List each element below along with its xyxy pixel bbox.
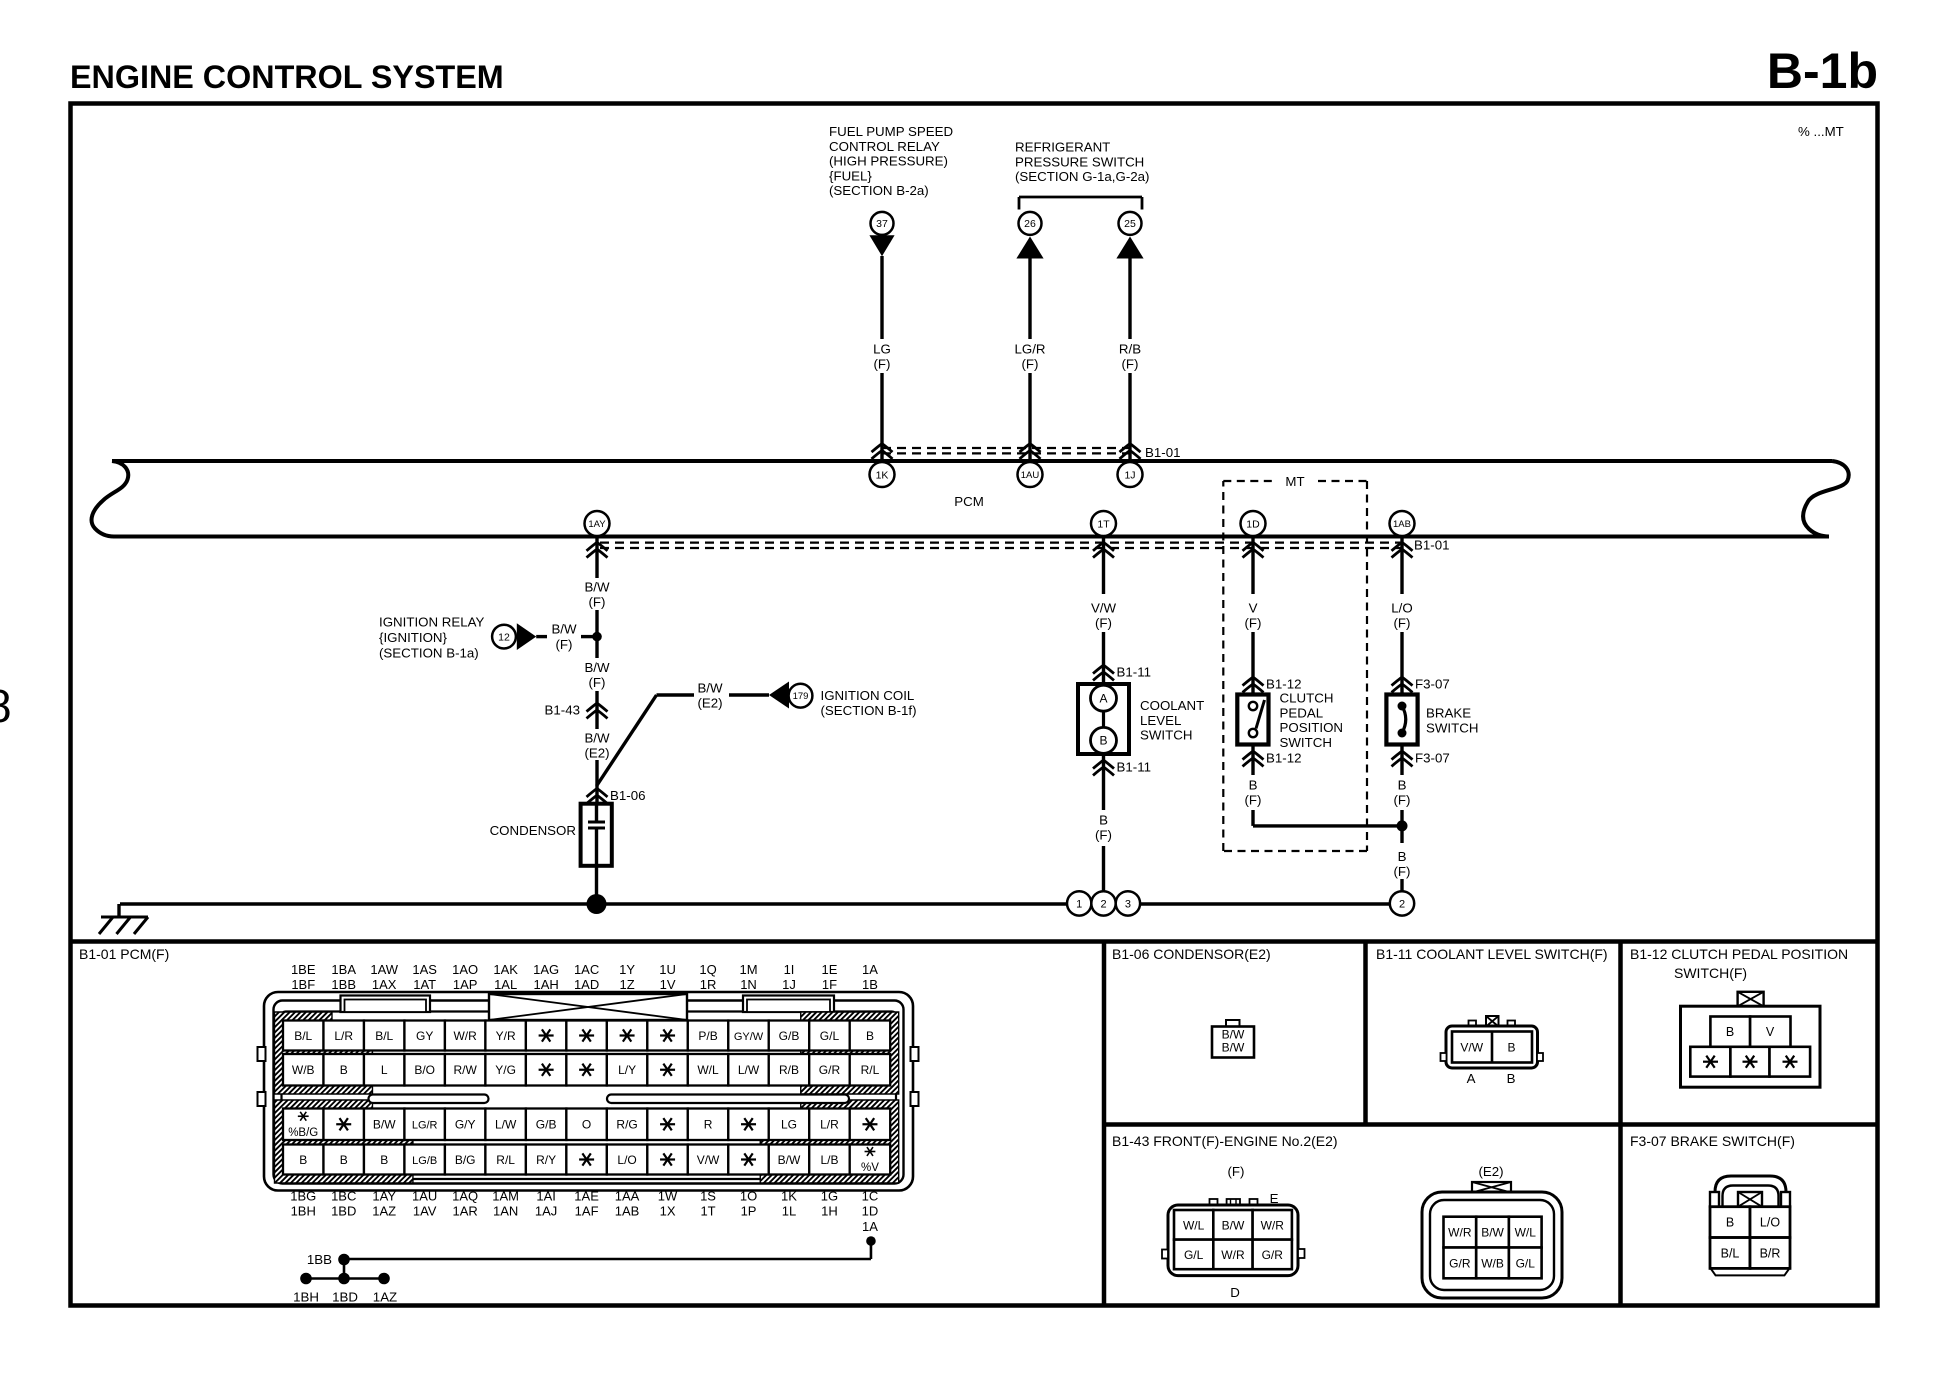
svg-text:B/W: B/W (778, 1153, 801, 1167)
svg-text:1O: 1O (740, 1189, 757, 1204)
svg-text:LG/R: LG/R (1014, 342, 1045, 357)
svg-text:1AZ: 1AZ (372, 1204, 396, 1219)
svg-text:CLUTCH: CLUTCH (1280, 691, 1334, 706)
svg-text:PRESSURE SWITCH: PRESSURE SWITCH (1015, 154, 1144, 169)
svg-text:1K: 1K (781, 1189, 797, 1204)
svg-text:B1-43: B1-43 (545, 703, 580, 718)
svg-text:1BB: 1BB (307, 1252, 332, 1267)
svg-text:F3-07: F3-07 (1415, 677, 1450, 692)
svg-text:BRAKE: BRAKE (1426, 706, 1471, 721)
svg-text:(SECTION B-1a): (SECTION B-1a) (379, 645, 479, 660)
svg-text:B: B (1507, 1071, 1516, 1086)
svg-text:R/B: R/B (1119, 342, 1141, 357)
svg-text:LEVEL: LEVEL (1140, 713, 1181, 728)
svg-text:25: 25 (1124, 218, 1136, 230)
svg-text:1BA: 1BA (331, 962, 356, 977)
svg-text:MT: MT (1285, 474, 1304, 489)
svg-text:B/G: B/G (455, 1153, 476, 1167)
svg-text:B/L: B/L (1721, 1247, 1740, 1261)
svg-text:1W: 1W (658, 1189, 678, 1204)
svg-text:G/B: G/B (779, 1029, 800, 1043)
svg-text:REFRIGERANT: REFRIGERANT (1015, 140, 1110, 155)
svg-text:L/O: L/O (1760, 1216, 1780, 1230)
svg-text:1AA: 1AA (615, 1189, 640, 1204)
svg-text:1AL: 1AL (494, 977, 517, 992)
svg-text:W/B: W/B (292, 1063, 315, 1077)
svg-text:R: R (704, 1118, 713, 1132)
svg-text:L/R: L/R (820, 1118, 839, 1132)
svg-text:A: A (1099, 692, 1107, 706)
svg-text:1AT: 1AT (413, 977, 436, 992)
svg-text:B1-01 PCM(F): B1-01 PCM(F) (79, 946, 169, 962)
svg-text:(SECTION B-2a): (SECTION B-2a) (829, 183, 929, 198)
svg-text:1P: 1P (741, 1204, 757, 1219)
svg-text:LG/R: LG/R (412, 1120, 438, 1132)
svg-text:1BE: 1BE (291, 962, 316, 977)
svg-text:1BH: 1BH (293, 1290, 319, 1305)
svg-text:(F): (F) (874, 356, 891, 371)
svg-text:1AK: 1AK (493, 962, 518, 977)
svg-text:L/R: L/R (334, 1029, 353, 1043)
svg-text:(F): (F) (1394, 615, 1411, 630)
svg-text:{IGNITION}: {IGNITION} (379, 630, 448, 645)
svg-text:R/L: R/L (861, 1063, 880, 1077)
svg-text:(E2): (E2) (697, 695, 722, 710)
svg-text:1AF: 1AF (575, 1204, 599, 1219)
svg-text:1U: 1U (659, 962, 676, 977)
svg-text:SWITCH(F): SWITCH(F) (1674, 965, 1747, 981)
svg-text:IGNITION COIL: IGNITION COIL (821, 688, 915, 703)
svg-text:B1-01: B1-01 (1414, 538, 1449, 553)
svg-text:V: V (1249, 601, 1258, 616)
svg-text:179: 179 (793, 691, 809, 702)
svg-text:1AE: 1AE (574, 1189, 599, 1204)
svg-text:1BH: 1BH (291, 1204, 316, 1219)
svg-text:26: 26 (1024, 218, 1036, 230)
svg-text:1AQ: 1AQ (452, 1189, 478, 1204)
svg-text:(F): (F) (1095, 827, 1112, 842)
svg-text:POSITION: POSITION (1280, 720, 1344, 735)
svg-text:1AJ: 1AJ (535, 1204, 557, 1219)
svg-text:B1-06: B1-06 (610, 788, 645, 803)
svg-text:GY: GY (416, 1029, 433, 1043)
svg-text:F3-07 BRAKE SWITCH(F): F3-07 BRAKE SWITCH(F) (1630, 1133, 1795, 1149)
svg-text:1AY: 1AY (588, 519, 606, 530)
svg-text:1BC: 1BC (331, 1189, 356, 1204)
svg-text:G/B: G/B (536, 1118, 557, 1132)
svg-text:1AM: 1AM (492, 1189, 519, 1204)
svg-text:V: V (1766, 1025, 1775, 1039)
svg-text:B1-12: B1-12 (1266, 677, 1301, 692)
svg-text:B1-11: B1-11 (1117, 760, 1152, 775)
svg-text:(F): (F) (556, 637, 573, 652)
svg-text:1AR: 1AR (453, 1204, 478, 1219)
svg-text:L/Y: L/Y (618, 1063, 636, 1077)
svg-text:B: B (380, 1153, 388, 1167)
svg-text:B/W: B/W (1222, 1028, 1245, 1042)
svg-text:LG/B: LG/B (412, 1155, 437, 1167)
svg-text:B: B (1398, 778, 1407, 793)
svg-text:%V: %V (861, 1162, 879, 1174)
svg-text:B1-43 FRONT(F)-ENGINE No.2(E2: B1-43 FRONT(F)-ENGINE No.2(E2) (1112, 1133, 1338, 1149)
svg-text:PCM: PCM (954, 494, 984, 509)
svg-text:G/Y: G/Y (455, 1118, 476, 1132)
svg-text:GY/W: GY/W (734, 1031, 764, 1043)
svg-text:L/W: L/W (738, 1063, 760, 1077)
svg-text:B/W: B/W (584, 580, 610, 595)
svg-text:B/O: B/O (414, 1063, 435, 1077)
svg-text:G/L: G/L (1516, 1257, 1536, 1271)
svg-text:V/W: V/W (697, 1153, 720, 1167)
svg-text:2: 2 (1100, 898, 1106, 910)
svg-text:W/L: W/L (1515, 1226, 1537, 1240)
svg-text:1B: 1B (862, 977, 878, 992)
svg-text:1F: 1F (822, 977, 837, 992)
svg-text:B/W: B/W (1481, 1226, 1504, 1240)
svg-text:1M: 1M (739, 962, 757, 977)
svg-text:B: B (1726, 1025, 1734, 1039)
svg-text:1AO: 1AO (452, 962, 478, 977)
svg-text:V/W: V/W (1091, 601, 1117, 616)
svg-text:1AN: 1AN (493, 1204, 518, 1219)
svg-text:B1-06 CONDENSOR(E2): B1-06 CONDENSOR(E2) (1112, 946, 1271, 962)
svg-text:1AX: 1AX (372, 977, 397, 992)
svg-text:B: B (1099, 813, 1108, 828)
svg-text:R/Y: R/Y (536, 1153, 556, 1167)
svg-text:(F): (F) (1228, 1164, 1245, 1179)
svg-text:1H: 1H (821, 1204, 838, 1219)
svg-text:G/R: G/R (819, 1063, 841, 1077)
svg-text:1S: 1S (700, 1189, 716, 1204)
svg-text:B1-12 CLUTCH PEDAL POSITION: B1-12 CLUTCH PEDAL POSITION (1630, 946, 1848, 962)
svg-text:G/L: G/L (1184, 1248, 1204, 1262)
svg-text:1N: 1N (740, 977, 757, 992)
svg-text:CONTROL RELAY: CONTROL RELAY (829, 139, 940, 154)
svg-text:W/R: W/R (1261, 1219, 1285, 1233)
svg-text:B: B (1099, 734, 1107, 748)
svg-text:SWITCH: SWITCH (1280, 735, 1332, 750)
svg-text:(F): (F) (1245, 792, 1262, 807)
svg-text:1BD: 1BD (332, 1290, 358, 1305)
svg-text:LG: LG (873, 342, 891, 357)
svg-text:1AS: 1AS (412, 962, 437, 977)
svg-text:PEDAL: PEDAL (1280, 705, 1324, 720)
svg-text:L/B: L/B (820, 1153, 838, 1167)
svg-text:L/O: L/O (1391, 601, 1412, 616)
svg-text:1I: 1I (784, 962, 795, 977)
svg-text:W/L: W/L (1183, 1219, 1205, 1233)
svg-text:1BF: 1BF (291, 977, 315, 992)
svg-text:1AH: 1AH (533, 977, 558, 992)
svg-text:G/L: G/L (820, 1029, 840, 1043)
svg-text:1AU: 1AU (1021, 470, 1040, 481)
svg-text:1AV: 1AV (413, 1204, 437, 1219)
svg-text:8: 8 (0, 680, 12, 732)
svg-text:B/W: B/W (1222, 1041, 1245, 1055)
svg-text:1Q: 1Q (699, 962, 716, 977)
svg-text:2: 2 (1399, 898, 1405, 910)
svg-text:W/R: W/R (1448, 1226, 1472, 1240)
svg-text:B1-01: B1-01 (1145, 445, 1180, 460)
svg-text:1C: 1C (862, 1189, 879, 1204)
svg-text:W/L: W/L (697, 1063, 719, 1077)
svg-text:%B/G: %B/G (288, 1127, 318, 1139)
svg-text:COOLANT: COOLANT (1140, 698, 1204, 713)
svg-text:W/B: W/B (1481, 1257, 1504, 1271)
svg-text:W/R: W/R (1221, 1248, 1245, 1262)
svg-text:1J: 1J (782, 977, 796, 992)
svg-text:(F): (F) (1394, 864, 1411, 879)
svg-text:12: 12 (498, 631, 510, 643)
svg-text:1AB: 1AB (1393, 519, 1411, 530)
svg-text:(F): (F) (1245, 615, 1262, 630)
svg-text:D: D (1230, 1285, 1240, 1300)
svg-text:CONDENSOR: CONDENSOR (490, 823, 576, 838)
svg-text:B/W: B/W (584, 731, 610, 746)
svg-text:B: B (340, 1153, 348, 1167)
svg-text:SWITCH: SWITCH (1140, 728, 1192, 743)
svg-text:(F): (F) (589, 675, 606, 690)
svg-text:L/W: L/W (495, 1118, 517, 1132)
svg-text:1Z: 1Z (619, 977, 634, 992)
svg-text:(HIGH PRESSURE): (HIGH PRESSURE) (829, 154, 948, 169)
svg-text:G/R: G/R (1449, 1257, 1471, 1271)
svg-text:% ...MT: % ...MT (1798, 124, 1844, 139)
svg-text:1AD: 1AD (574, 977, 599, 992)
svg-text:A: A (1467, 1071, 1476, 1086)
svg-text:L: L (381, 1063, 388, 1077)
svg-text:1G: 1G (821, 1189, 838, 1204)
svg-text:1AY: 1AY (372, 1189, 396, 1204)
svg-text:W/R: W/R (453, 1029, 477, 1043)
svg-text:V/W: V/W (1460, 1041, 1483, 1055)
svg-text:G/R: G/R (1262, 1248, 1284, 1262)
svg-text:Y/R: Y/R (496, 1029, 516, 1043)
svg-text:1D: 1D (1246, 518, 1260, 530)
svg-text:(F): (F) (1022, 356, 1039, 371)
svg-text:B/W: B/W (697, 681, 723, 696)
svg-text:(E2): (E2) (1478, 1164, 1503, 1179)
svg-text:B1-11: B1-11 (1117, 665, 1152, 680)
svg-text:1E: 1E (822, 962, 838, 977)
svg-text:1T: 1T (700, 1204, 715, 1219)
svg-text:B1-11 COOLANT LEVEL SWITCH(F): B1-11 COOLANT LEVEL SWITCH(F) (1376, 946, 1608, 962)
svg-text:R/W: R/W (453, 1063, 477, 1077)
svg-text:1AC: 1AC (574, 962, 599, 977)
svg-text:1AG: 1AG (533, 962, 559, 977)
svg-text:B/L: B/L (294, 1029, 312, 1043)
svg-text:L/O: L/O (617, 1153, 636, 1167)
svg-text:1: 1 (1076, 898, 1082, 910)
svg-text:B/L: B/L (375, 1029, 393, 1043)
svg-text:Y/G: Y/G (495, 1063, 516, 1077)
svg-text:(F): (F) (1122, 356, 1139, 371)
svg-text:R/G: R/G (616, 1118, 637, 1132)
svg-text:P/B: P/B (698, 1029, 717, 1043)
svg-text:B: B (1726, 1216, 1734, 1230)
svg-text:37: 37 (876, 218, 888, 230)
svg-text:B1-12: B1-12 (1266, 751, 1301, 766)
svg-text:1AP: 1AP (453, 977, 478, 992)
svg-text:B/W: B/W (584, 660, 610, 675)
svg-text:ENGINE CONTROL SYSTEM: ENGINE CONTROL SYSTEM (70, 59, 504, 95)
svg-text:LG: LG (781, 1118, 797, 1132)
svg-text:1Y: 1Y (619, 962, 635, 977)
svg-text:1BB: 1BB (331, 977, 356, 992)
svg-text:(SECTION G-1a,G-2a): (SECTION G-1a,G-2a) (1015, 169, 1149, 184)
svg-text:F3-07: F3-07 (1415, 751, 1450, 766)
svg-text:R/B: R/B (779, 1063, 799, 1077)
svg-text:{FUEL}: {FUEL} (829, 168, 872, 183)
svg-text:(E2): (E2) (584, 745, 609, 760)
svg-text:1T: 1T (1097, 518, 1110, 530)
svg-text:B: B (340, 1063, 348, 1077)
svg-text:1K: 1K (876, 469, 889, 481)
svg-text:1AW: 1AW (370, 962, 398, 977)
svg-text:R/L: R/L (496, 1153, 515, 1167)
svg-text:3: 3 (1125, 898, 1131, 910)
svg-text:IGNITION RELAY: IGNITION RELAY (379, 615, 485, 630)
svg-text:B: B (299, 1153, 307, 1167)
svg-text:B: B (1249, 778, 1258, 793)
svg-text:B: B (866, 1029, 874, 1043)
svg-text:(SECTION B-1f): (SECTION B-1f) (821, 703, 917, 718)
svg-text:1BG: 1BG (290, 1189, 316, 1204)
svg-text:B: B (1398, 849, 1407, 864)
svg-text:B/W: B/W (551, 622, 577, 637)
svg-text:(F): (F) (1095, 615, 1112, 630)
svg-text:B/R: B/R (1760, 1247, 1781, 1261)
svg-text:1AZ: 1AZ (373, 1290, 397, 1305)
svg-text:1J: 1J (1124, 469, 1135, 481)
svg-text:SWITCH: SWITCH (1426, 720, 1478, 735)
svg-text:1L: 1L (782, 1204, 796, 1219)
svg-text:1V: 1V (660, 977, 676, 992)
svg-text:O: O (582, 1118, 591, 1132)
svg-text:1AB: 1AB (615, 1204, 640, 1219)
svg-text:(F): (F) (589, 594, 606, 609)
svg-text:B/W: B/W (1222, 1219, 1245, 1233)
svg-text:FUEL PUMP SPEED: FUEL PUMP SPEED (829, 124, 953, 139)
svg-text:1BD: 1BD (331, 1204, 356, 1219)
svg-text:1A: 1A (862, 1219, 878, 1234)
svg-text:1A: 1A (862, 962, 878, 977)
svg-text:1D: 1D (862, 1204, 879, 1219)
svg-text:1R: 1R (700, 977, 717, 992)
svg-text:B-1b: B-1b (1767, 43, 1878, 99)
svg-text:1AI: 1AI (536, 1189, 556, 1204)
svg-text:B: B (1507, 1041, 1515, 1055)
svg-text:(F): (F) (1394, 792, 1411, 807)
svg-text:1AU: 1AU (412, 1189, 437, 1204)
svg-text:B/W: B/W (373, 1118, 396, 1132)
svg-text:1X: 1X (660, 1204, 676, 1219)
